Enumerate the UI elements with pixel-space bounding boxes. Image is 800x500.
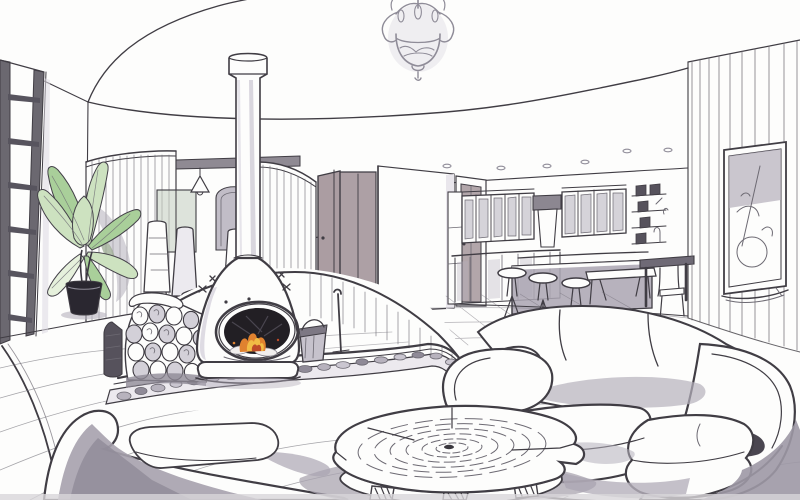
range-hood	[533, 195, 561, 210]
screenshot-root	[0, 0, 800, 500]
scan-edge-bottom	[0, 494, 800, 500]
framed-artwork	[722, 142, 788, 302]
kindling-basket	[104, 322, 122, 377]
plant-pot	[66, 281, 102, 315]
interior-sketch-canvas	[0, 0, 800, 500]
log-ends	[126, 305, 207, 381]
table-top	[333, 406, 584, 493]
stove-base	[198, 362, 298, 378]
